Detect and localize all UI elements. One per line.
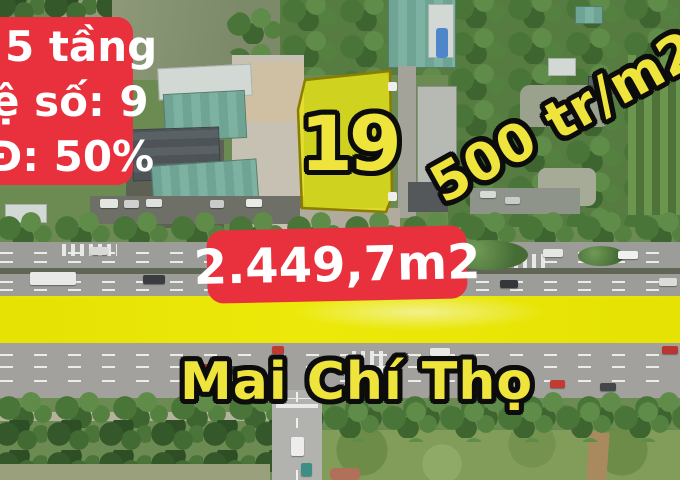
plot-19-label: 19: [300, 106, 388, 182]
info-line-coefficient: ệ số: 9: [0, 74, 133, 129]
zoning-info-box: 5 tầng ệ số: 9 Đ: 50%: [0, 17, 133, 185]
street-name-label: Mai Chí Thọ: [180, 356, 533, 408]
info-line-density: Đ: 50%: [0, 129, 133, 184]
area-value: 2.449,7m2: [193, 234, 481, 296]
aerial-photo: 19 500 tr/m2 5 tầng ệ số: 9 Đ: 50% 2.449…: [0, 0, 680, 480]
area-banner: 2.449,7m2: [206, 225, 467, 303]
info-line-floors: 5 tầng: [5, 19, 133, 74]
